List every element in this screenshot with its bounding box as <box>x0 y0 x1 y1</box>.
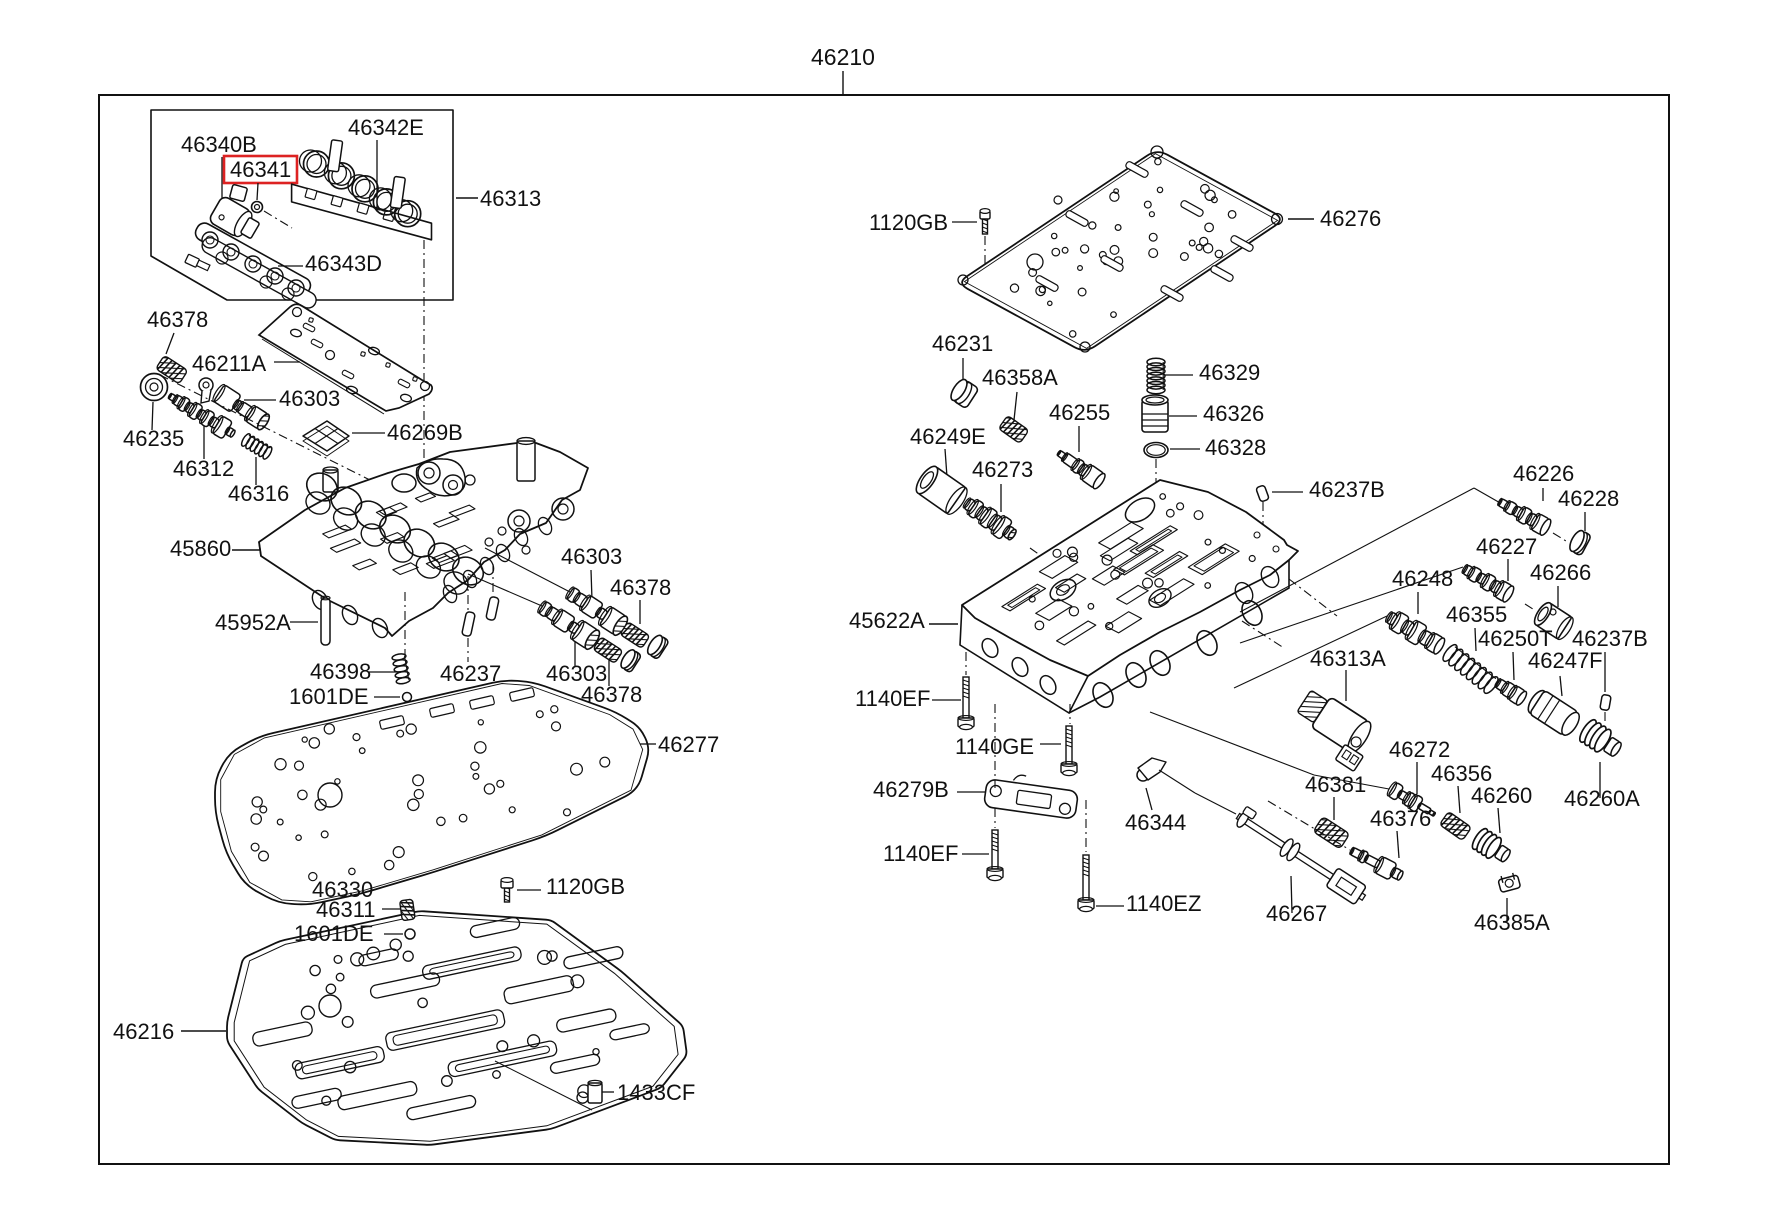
svg-text:1140EF: 1140EF <box>883 841 958 866</box>
svg-text:46376: 46376 <box>1370 806 1431 831</box>
svg-text:46216: 46216 <box>113 1019 174 1044</box>
svg-text:46378: 46378 <box>610 575 671 600</box>
svg-text:46313: 46313 <box>480 186 541 211</box>
svg-text:46303: 46303 <box>279 386 340 411</box>
svg-text:46235: 46235 <box>123 426 184 451</box>
svg-text:46342E: 46342E <box>348 115 424 140</box>
svg-text:46227: 46227 <box>1476 534 1537 559</box>
svg-text:46311: 46311 <box>316 897 376 922</box>
svg-text:46316: 46316 <box>228 481 289 506</box>
svg-text:46358A: 46358A <box>982 365 1058 390</box>
svg-text:46340B: 46340B <box>181 132 257 157</box>
svg-text:46260A: 46260A <box>1564 786 1640 811</box>
svg-text:1120GB: 1120GB <box>546 874 625 899</box>
svg-text:46237B: 46237B <box>1309 477 1385 502</box>
svg-text:46231: 46231 <box>932 331 993 356</box>
svg-text:1140EZ: 1140EZ <box>1126 891 1201 916</box>
svg-text:46255: 46255 <box>1049 400 1110 425</box>
svg-text:46329: 46329 <box>1199 360 1260 385</box>
svg-text:46303: 46303 <box>561 544 622 569</box>
svg-text:46343D: 46343D <box>305 251 382 276</box>
svg-text:46276: 46276 <box>1320 206 1381 231</box>
svg-text:46277: 46277 <box>658 732 719 757</box>
svg-text:46226: 46226 <box>1513 461 1574 486</box>
svg-text:46355: 46355 <box>1446 602 1507 627</box>
svg-text:46398: 46398 <box>310 659 371 684</box>
svg-text:46326: 46326 <box>1203 401 1264 426</box>
svg-text:45860: 45860 <box>170 536 231 561</box>
svg-text:46266: 46266 <box>1530 560 1591 585</box>
svg-text:46381: 46381 <box>1305 772 1366 797</box>
svg-text:46313A: 46313A <box>1310 646 1386 671</box>
svg-text:46267: 46267 <box>1266 901 1327 926</box>
svg-text:45622A: 45622A <box>849 608 925 633</box>
svg-text:1433CF: 1433CF <box>617 1080 695 1105</box>
svg-text:46269B: 46269B <box>387 420 463 445</box>
svg-text:46210: 46210 <box>811 44 875 70</box>
svg-text:1601DE: 1601DE <box>289 684 369 709</box>
svg-text:46385A: 46385A <box>1474 910 1550 935</box>
svg-text:46211A: 46211A <box>192 351 267 376</box>
svg-text:46279B: 46279B <box>873 777 949 802</box>
svg-text:46312: 46312 <box>173 456 234 481</box>
svg-text:45952A: 45952A <box>215 610 291 635</box>
svg-text:46341: 46341 <box>230 157 291 182</box>
svg-text:46328: 46328 <box>1205 435 1266 460</box>
svg-text:46272: 46272 <box>1389 737 1450 762</box>
svg-text:46228: 46228 <box>1558 486 1619 511</box>
svg-text:46260: 46260 <box>1471 783 1532 808</box>
svg-text:1601DE: 1601DE <box>294 921 374 946</box>
svg-text:46344: 46344 <box>1125 810 1186 835</box>
svg-text:46247F: 46247F <box>1528 648 1603 673</box>
svg-text:46273: 46273 <box>972 457 1033 482</box>
svg-text:46378: 46378 <box>147 307 208 332</box>
svg-text:1140EF: 1140EF <box>855 686 930 711</box>
svg-text:46249E: 46249E <box>910 424 986 449</box>
svg-text:46248: 46248 <box>1392 566 1453 591</box>
svg-text:1120GB: 1120GB <box>869 210 948 235</box>
